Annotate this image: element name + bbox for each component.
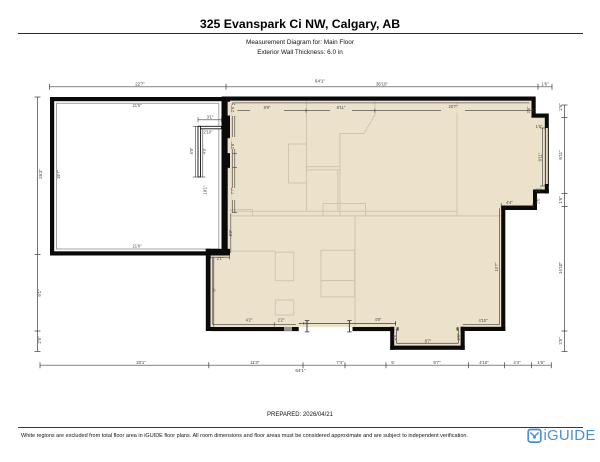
svg-text:10'7": 10'7"	[494, 262, 499, 272]
svg-text:9'1": 9'1"	[37, 289, 42, 297]
svg-text:20'7": 20'7"	[448, 104, 458, 109]
svg-text:2'6": 2'6"	[526, 106, 531, 113]
svg-text:21'6": 21'6"	[132, 243, 142, 248]
svg-text:64'1": 64'1"	[295, 368, 306, 373]
svg-text:2'6": 2'6"	[536, 197, 541, 204]
svg-text:4'4": 4'4"	[513, 360, 521, 365]
svg-text:4'9": 4'9"	[375, 317, 382, 322]
svg-text:8'11": 8'11"	[558, 150, 563, 160]
svg-text:64'1": 64'1"	[315, 79, 326, 84]
svg-text:26'3": 26'3"	[38, 169, 43, 179]
svg-text:4'4": 4'4"	[506, 200, 513, 205]
svg-text:4'9": 4'9"	[202, 147, 207, 154]
svg-text:36'10": 36'10"	[376, 82, 388, 87]
svg-text:2'6": 2'6"	[230, 105, 235, 112]
svg-text:11'3": 11'3"	[250, 360, 260, 365]
svg-text:1'6": 1'6"	[537, 360, 545, 365]
svg-text:2'6": 2'6"	[558, 103, 563, 111]
svg-text:2'5": 2'5"	[37, 336, 42, 344]
svg-text:1'6": 1'6"	[541, 82, 549, 87]
svg-text:9'9": 9'9"	[264, 105, 271, 110]
svg-text:8'11": 8'11"	[337, 105, 346, 110]
svg-text:4'10": 4'10"	[478, 318, 488, 323]
svg-text:2'5": 2'5"	[558, 337, 563, 345]
svg-text:2'10": 2'10"	[203, 130, 213, 135]
svg-text:2'6": 2'6"	[456, 333, 461, 340]
svg-text:3'1": 3'1"	[207, 115, 214, 120]
svg-text:7'4": 7'4"	[336, 360, 344, 365]
svg-text:8'11": 8'11"	[537, 152, 542, 161]
svg-text:22'7": 22'7"	[135, 82, 145, 87]
svg-text:8'7": 8'7"	[425, 339, 432, 344]
svg-text:2'8": 2'8"	[230, 142, 235, 149]
svg-text:2'6": 2'6"	[392, 333, 397, 340]
svg-text:14'10": 14'10"	[558, 262, 563, 274]
svg-text:5': 5'	[391, 360, 394, 365]
svg-text:9'7": 9'7"	[433, 360, 441, 365]
svg-text:4'2": 4'2"	[246, 318, 253, 323]
svg-text:2'2": 2'2"	[278, 318, 285, 323]
svg-text:19'7": 19'7"	[56, 169, 61, 179]
svg-text:4'10": 4'10"	[479, 360, 489, 365]
svg-text:1'6": 1'6"	[535, 188, 542, 193]
svg-text:7'7": 7'7"	[230, 187, 235, 194]
svg-text:19'1": 19'1"	[203, 185, 208, 195]
svg-text:1': 1'	[303, 322, 306, 326]
svg-text:20'1": 20'1"	[136, 360, 146, 365]
svg-text:5'9": 5'9"	[189, 147, 194, 154]
svg-text:1'6": 1'6"	[558, 196, 563, 204]
svg-text:21'6": 21'6"	[132, 103, 142, 108]
